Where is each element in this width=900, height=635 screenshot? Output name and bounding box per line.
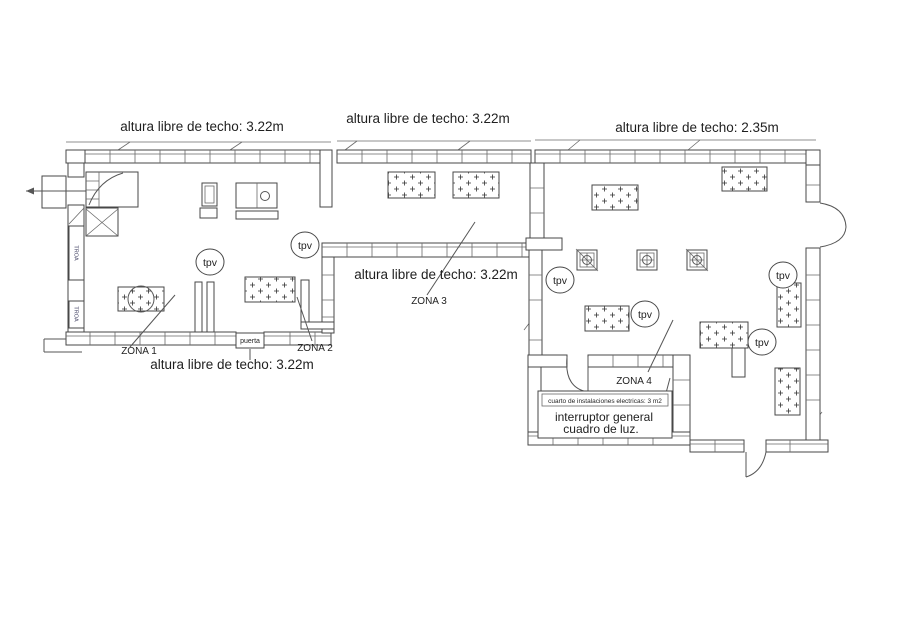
left-wall-upper [68,163,84,177]
walls-corridor [337,150,531,163]
tpv-marker-2: tpv [291,232,319,258]
bottom-right-door [746,452,766,477]
zone4-left-wall-upper [530,163,544,238]
table-zone4-right-1 [777,283,801,327]
electrical-room-top-wall-a [528,355,567,367]
ceiling-light-symbol-3 [686,249,708,271]
passage-wall-stub [732,348,745,377]
roof-overhang-lines [66,140,822,425]
electrical-room-top-wall-b [588,355,673,367]
tables [118,167,801,415]
zone-label-2: ZONA 2 [297,343,333,354]
long-interior-glazed-wall [322,243,541,257]
partition-a [195,282,202,332]
leader-zona3 [427,222,475,295]
ceiling-label-top-left: altura libre de techo: 3.22m [120,119,284,134]
floor-plan-canvas: tpv tpv tpv tpv tpv tpv [0,0,900,635]
tpv-label-2: tpv [298,240,313,252]
ceiling-symbols [576,249,708,271]
cabinet-tall-base [200,208,217,218]
puerta-label: puerta [240,338,260,345]
ceiling-label-middle: altura libre de techo: 3.22m [354,267,518,282]
bottom-right-wall-a [690,440,744,452]
table-zone4-right-2 [775,368,800,415]
zone4-left-wall-stub [526,238,562,250]
tpv-marker-1: tpv [196,249,224,275]
bottom-right-wall-b [766,440,828,452]
puerta-marker: puerta [236,333,264,348]
corner-top-right [806,150,820,165]
zone2-counter-vertical [301,280,309,322]
right-wall-upper-left-room [320,150,332,207]
corner-top-left [66,150,85,163]
tpv-label-3: tpv [553,275,568,287]
table-zone1-round-base [118,287,164,311]
tpv-marker-4: tpv [631,301,659,327]
tpv-marker-3: tpv [546,267,574,293]
tpv-marker-5: tpv [769,262,797,288]
ceiling-label-top-middle: altura libre de techo: 3.22m [346,111,510,126]
glazed-wall-top-middle [337,150,531,163]
tpv-label-6: tpv [755,337,770,349]
counter-base [236,211,278,219]
table-zone4-top-2 [722,167,767,191]
tpv-marker-6: tpv [748,329,776,355]
ceiling-light-symbol-1 [576,249,598,271]
zone-label-1: ZONA 1 [121,346,157,357]
right-wall-below-door [806,248,820,440]
table-zone4-mid-1 [585,306,629,331]
zone-label-4: ZONA 4 [616,376,652,387]
right-wall-above-door [806,165,820,202]
duct-label-1: TROA [73,245,79,261]
ceiling-light-symbol-2 [637,250,657,270]
table-zone4-mid-2 [700,322,748,348]
partition-b [207,282,214,332]
electrical-note-header: cuarto de instalaciones electricas: 3 m2 [548,398,662,405]
ceiling-label-top-right: altura libre de techo: 2.35m [615,120,779,135]
counter-unit [236,183,277,208]
duct-label-2: TROA [73,306,79,322]
electrical-room-right-wall [673,355,690,440]
glazed-wall-top-right [535,150,806,163]
right-wall-lower-left-room [322,250,334,333]
floor-plan-drawing: tpv tpv tpv tpv tpv tpv [0,0,900,635]
bottom-wall-left-a [66,332,236,345]
table-corridor-2 [453,172,499,198]
table-zone2 [245,277,295,302]
entry-arrow-head [26,188,34,195]
entry-porch [42,176,66,208]
electrical-room-door [567,357,588,392]
ceiling-label-bottom-left: altura libre de techo: 3.22m [150,357,314,372]
zone4-left-wall-lower [529,250,542,355]
electrical-room-note: cuarto de instalaciones electricas: 3 m2… [538,391,672,438]
double-door-right-leaf-bottom [820,227,846,247]
tpv-label-1: tpv [203,257,218,269]
cabinet-tall [202,183,217,206]
electrical-note-line2: cuadro de luz. [563,422,638,436]
zone-label-3: ZONA 3 [411,296,447,307]
tpv-label-5: tpv [776,270,791,282]
table-zone4-top-1 [592,185,638,210]
glazed-wall-top-left [85,150,331,163]
double-door-right-leaf-top [820,203,846,227]
table-corridor-1 [388,172,435,198]
tpv-label-4: tpv [638,309,653,321]
